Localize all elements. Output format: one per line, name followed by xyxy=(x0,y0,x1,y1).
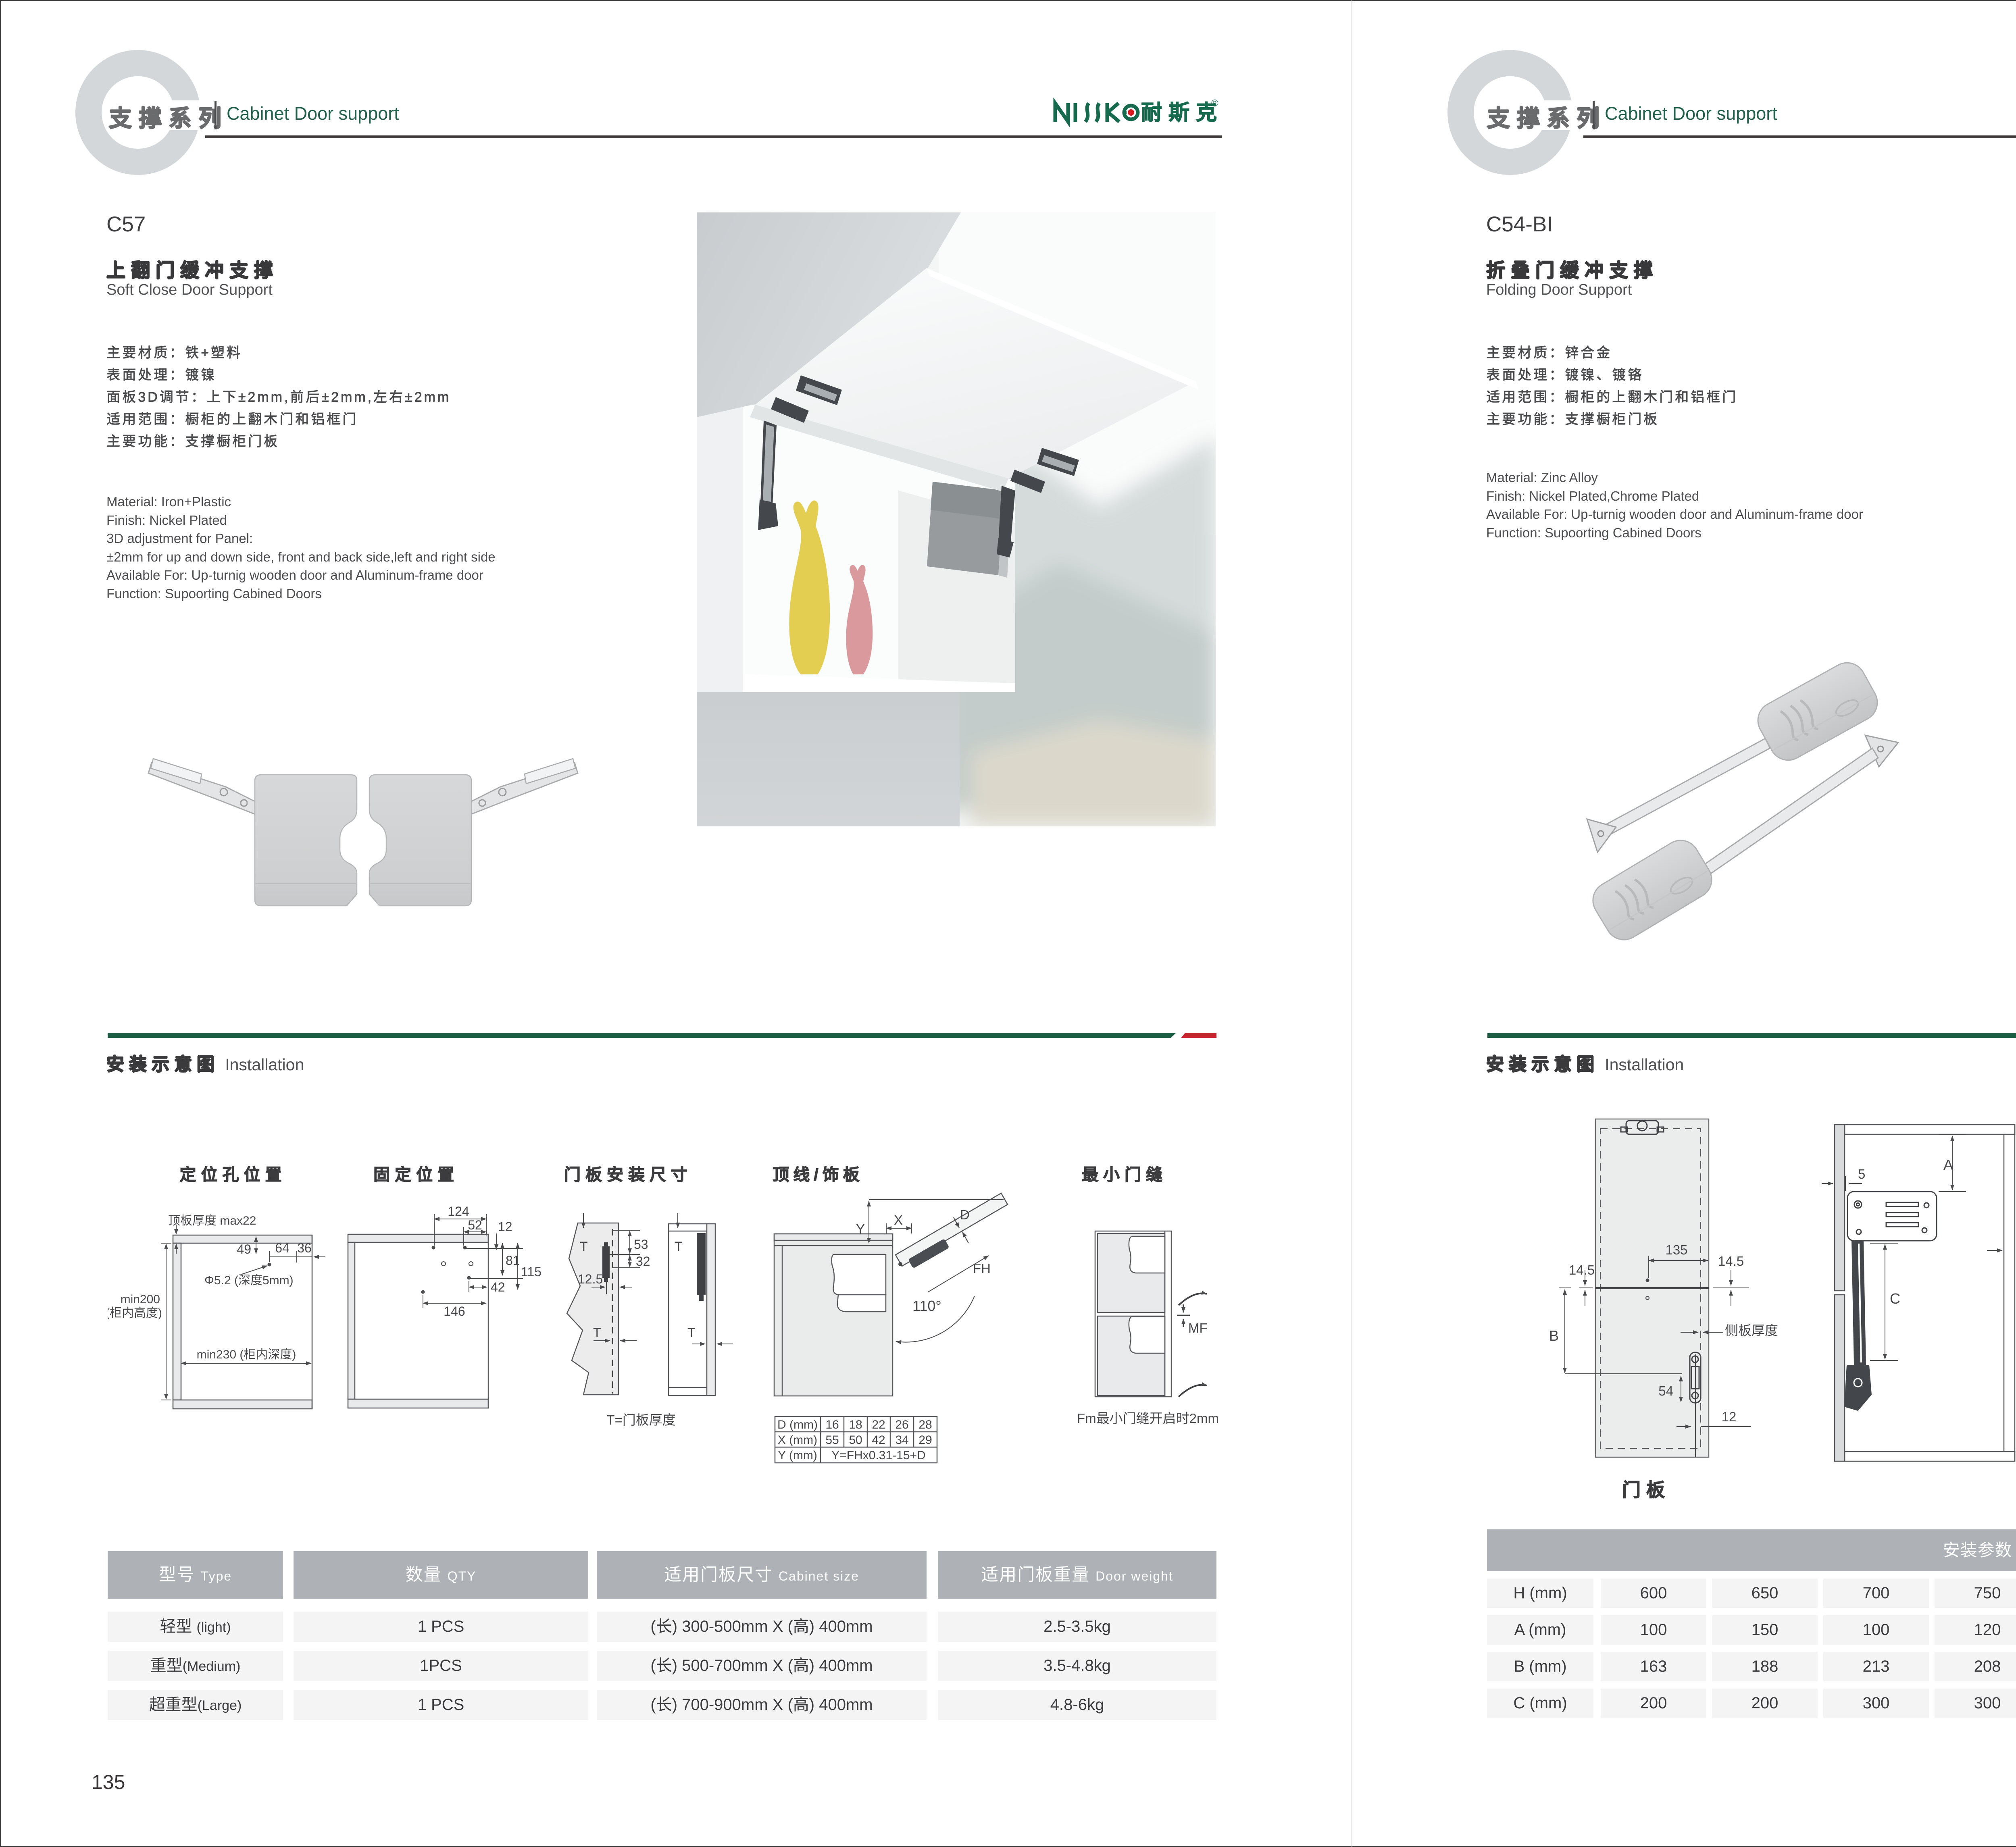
svg-text:50: 50 xyxy=(849,1433,862,1447)
svg-text:42: 42 xyxy=(872,1433,885,1447)
svg-text:32: 32 xyxy=(636,1254,650,1269)
svg-text:侧板厚度: 侧板厚度 xyxy=(1725,1323,1778,1338)
svg-text:29: 29 xyxy=(918,1433,932,1447)
svg-text:min230 (柜内深度): min230 (柜内深度) xyxy=(197,1348,296,1361)
svg-text:Fm最小门缝开启时2mm: Fm最小门缝开启时2mm xyxy=(1077,1411,1219,1426)
svg-text:34: 34 xyxy=(895,1433,908,1447)
svg-text:D (mm): D (mm) xyxy=(777,1418,818,1431)
svg-text:顶线/饰板: 顶线/饰板 xyxy=(773,1165,863,1184)
svg-text:D: D xyxy=(960,1207,970,1222)
svg-text:最小门缝: 最小门缝 xyxy=(1082,1165,1167,1184)
svg-text:Y (mm): Y (mm) xyxy=(778,1449,817,1462)
svg-text:FH: FH xyxy=(973,1261,991,1276)
svg-text:64: 64 xyxy=(275,1241,289,1255)
svg-text:22: 22 xyxy=(872,1418,885,1431)
svg-text:5: 5 xyxy=(1858,1167,1865,1181)
svg-text:146: 146 xyxy=(444,1304,465,1319)
svg-text:Y=FHx0.31-15+D: Y=FHx0.31-15+D xyxy=(831,1449,925,1462)
svg-text:42: 42 xyxy=(491,1280,505,1294)
svg-text:(柜内高度): (柜内高度) xyxy=(108,1306,162,1320)
svg-text:16: 16 xyxy=(825,1418,839,1431)
svg-text:12: 12 xyxy=(498,1219,512,1234)
svg-text:14.5: 14.5 xyxy=(1569,1263,1595,1277)
svg-text:12: 12 xyxy=(1722,1409,1737,1424)
svg-text:124: 124 xyxy=(448,1204,469,1219)
svg-text:53: 53 xyxy=(634,1237,648,1252)
svg-text:T: T xyxy=(687,1325,696,1340)
svg-text:52: 52 xyxy=(468,1218,482,1232)
svg-text:135: 135 xyxy=(1665,1242,1687,1257)
svg-text:Φ5.2 (深度5mm): Φ5.2 (深度5mm) xyxy=(204,1274,294,1287)
svg-text:B: B xyxy=(1549,1327,1559,1344)
svg-text:X (mm): X (mm) xyxy=(778,1433,817,1447)
svg-text:MF: MF xyxy=(1188,1321,1208,1335)
svg-text:28: 28 xyxy=(918,1418,932,1431)
svg-text:T: T xyxy=(580,1239,588,1254)
svg-text:55: 55 xyxy=(825,1433,839,1447)
svg-text:36: 36 xyxy=(297,1241,312,1255)
svg-text:54: 54 xyxy=(1658,1383,1673,1398)
svg-text:115: 115 xyxy=(521,1265,541,1279)
svg-text:49: 49 xyxy=(237,1242,251,1256)
svg-text:12.5: 12.5 xyxy=(578,1272,603,1286)
svg-text:顶板厚度 max22: 顶板厚度 max22 xyxy=(168,1214,256,1227)
svg-text:C: C xyxy=(1890,1290,1900,1307)
svg-text:T: T xyxy=(675,1239,683,1254)
svg-text:18: 18 xyxy=(849,1418,862,1431)
svg-text:T=门板厚度: T=门板厚度 xyxy=(606,1412,675,1427)
svg-text:14.5: 14.5 xyxy=(1718,1254,1744,1269)
svg-text:26: 26 xyxy=(895,1418,908,1431)
svg-text:固定位置: 固定位置 xyxy=(373,1165,459,1184)
svg-text:Y: Y xyxy=(856,1221,865,1236)
svg-text:X: X xyxy=(894,1213,903,1227)
svg-text:T: T xyxy=(593,1325,601,1340)
svg-text:110°: 110° xyxy=(912,1298,941,1314)
svg-text:®: ® xyxy=(1211,98,1218,109)
svg-text:A: A xyxy=(1943,1156,1953,1173)
svg-text:81: 81 xyxy=(506,1253,520,1268)
svg-text:门板: 门板 xyxy=(1622,1479,1670,1500)
svg-text:定位孔位置: 定位孔位置 xyxy=(180,1165,287,1184)
svg-text:min200: min200 xyxy=(121,1293,160,1306)
svg-text:门板安装尺寸: 门板安装尺寸 xyxy=(564,1165,692,1184)
